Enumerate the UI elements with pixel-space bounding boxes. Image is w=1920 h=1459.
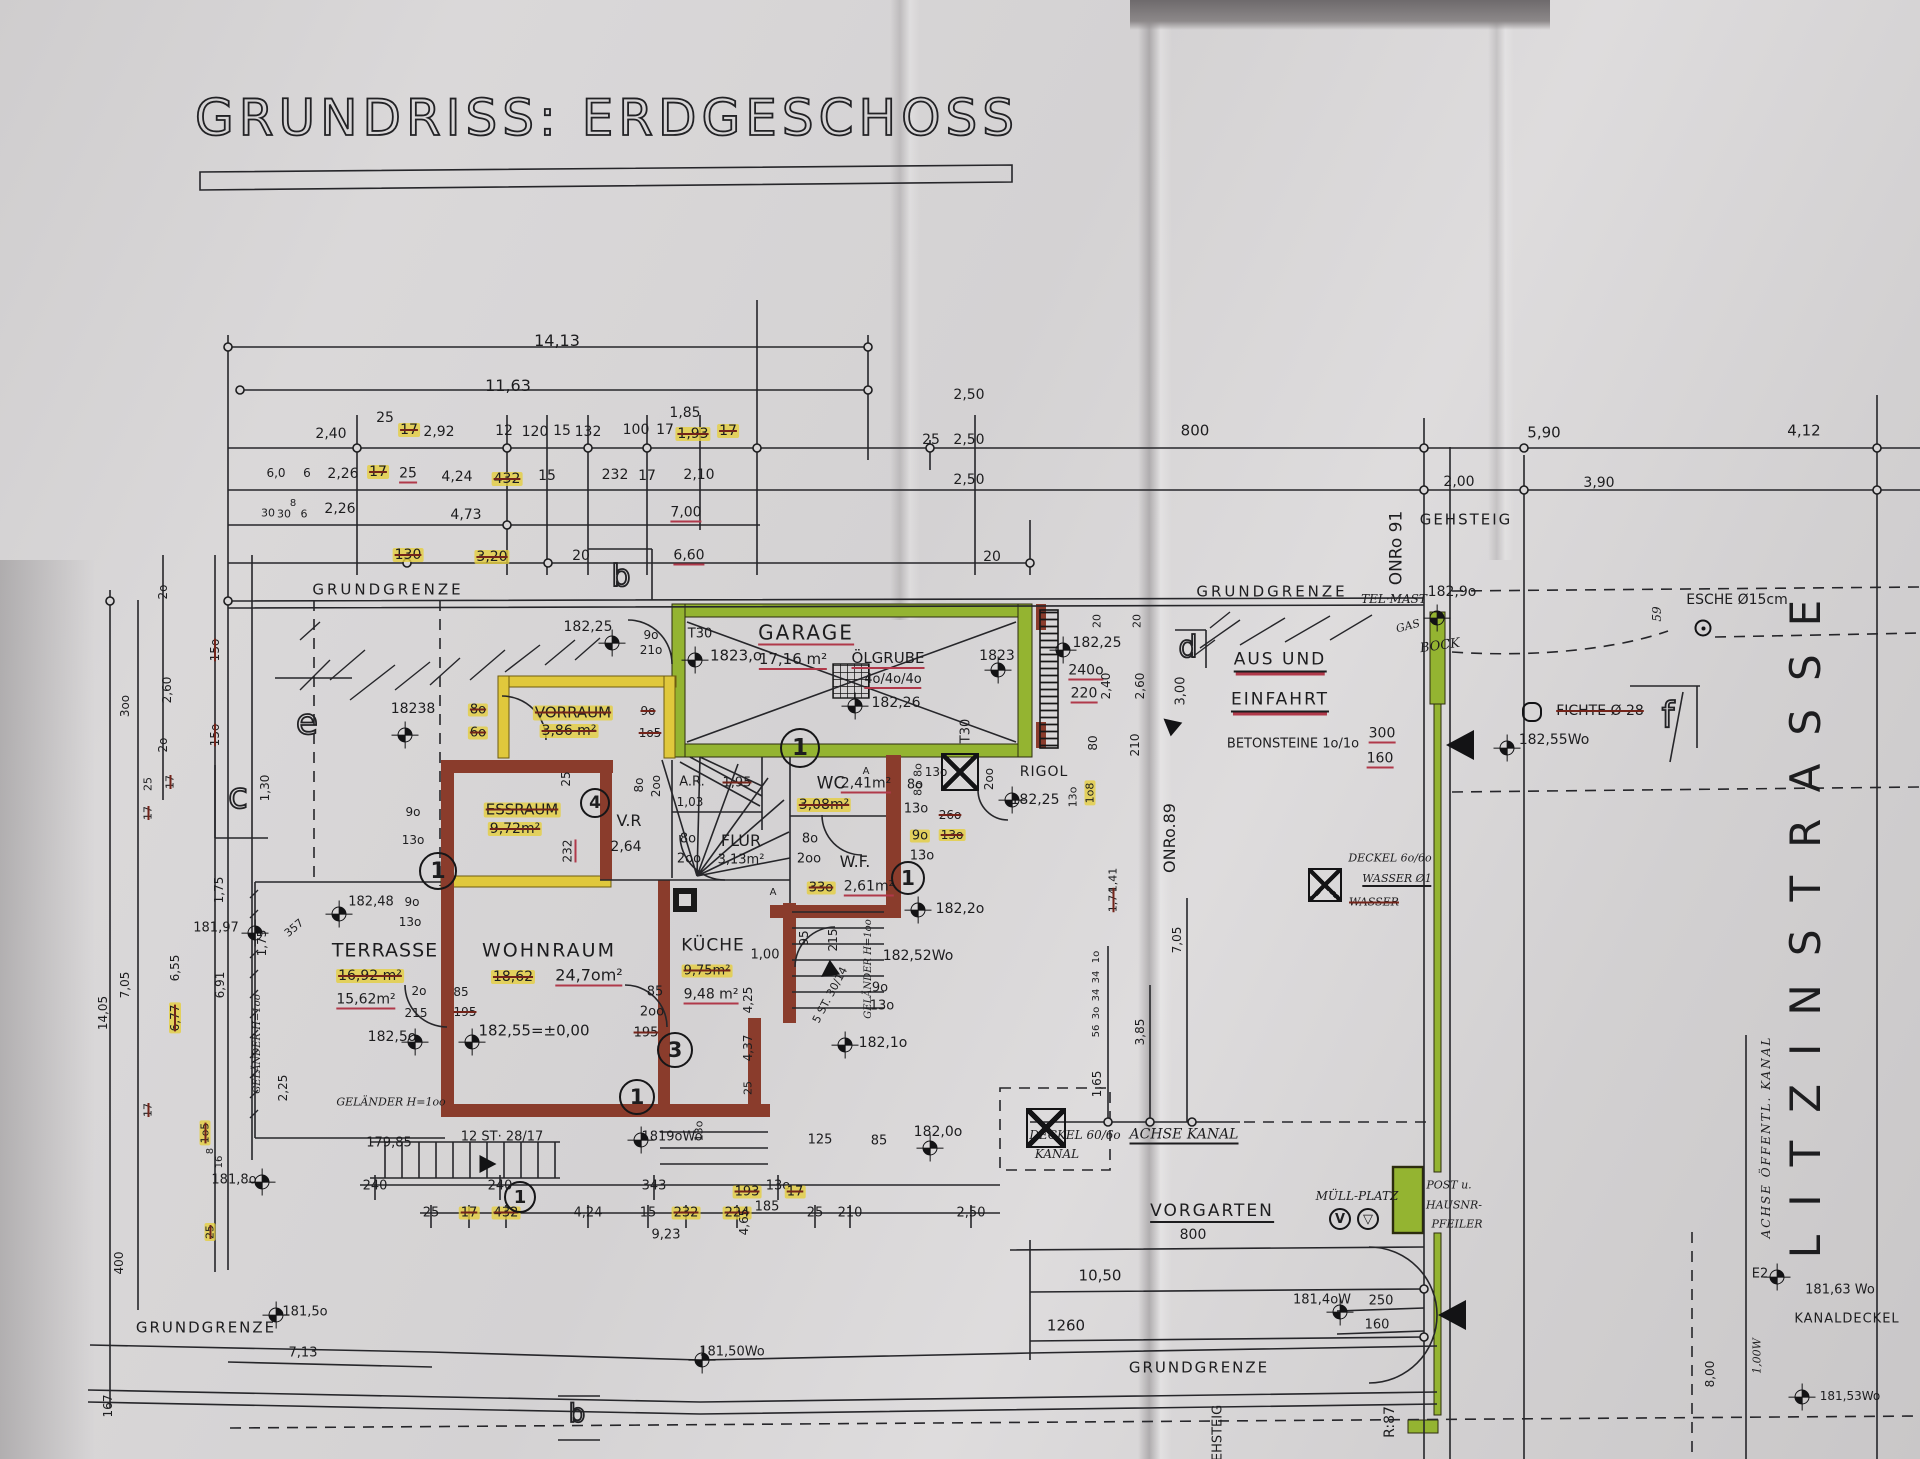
dim: 30 [261, 508, 275, 519]
boundary-label: GRUNDGRENZE [1129, 1361, 1269, 1376]
dim: 8o [468, 704, 488, 717]
position-marker-1: 1 [504, 1181, 536, 1213]
parcel-label: ONRo 91 [1389, 511, 1406, 586]
dim: 17 [398, 423, 420, 437]
dim: 9o [406, 806, 421, 818]
dim: 9,23 [652, 1229, 681, 1242]
dim: 1,93 [675, 427, 710, 441]
note: TEL·MAST [1361, 593, 1427, 605]
dim: 59 [1651, 606, 1663, 621]
dim: 193 [733, 1186, 762, 1199]
dim: 2,25 [277, 1075, 289, 1102]
elevation: 181,53Wo [1820, 1390, 1881, 1402]
dim: 15o [209, 639, 221, 662]
room-area: 24,7om² [555, 968, 622, 987]
position-marker-1: 1 [619, 1079, 655, 1115]
dim: 215 [405, 1007, 428, 1019]
dim: 20 [983, 550, 1001, 564]
dim: 5,90 [1527, 426, 1560, 441]
dim: 100 [623, 423, 650, 437]
dim: 400 [113, 1252, 125, 1275]
dim: 25 [423, 1207, 440, 1220]
dim: 13o [939, 829, 966, 841]
dim: 160 [1367, 752, 1394, 769]
elevation: 18238 [391, 702, 436, 716]
position-marker-1: 1 [780, 728, 820, 768]
dim: 17 [143, 1103, 154, 1117]
position-marker-3: 3 [657, 1032, 693, 1068]
elevation: 179,85 [366, 1137, 412, 1150]
dim: 4,24 [574, 1207, 603, 1220]
dim: 250 [1369, 1295, 1394, 1308]
survey-icon [408, 1035, 423, 1050]
room-area: 9,48 m² [684, 988, 739, 1005]
dim: 25 [560, 771, 572, 786]
note: DECKEL 6o/6o [1348, 853, 1431, 864]
dim: 2,50 [953, 433, 984, 447]
elevation: 182,9o [1428, 585, 1477, 599]
dim: 120 [522, 425, 549, 439]
note: GELÄNDER H=1oo [336, 1097, 445, 1108]
dim: 185 [755, 1201, 780, 1214]
dim: 13o [904, 803, 929, 816]
dim: 8o [680, 833, 696, 846]
dim: 195 [454, 1006, 477, 1018]
dim: 2oo [797, 853, 821, 866]
dim: 15 [538, 469, 556, 483]
dim: 130 [393, 548, 424, 562]
dim: 300 [1369, 727, 1396, 744]
section-letter: e [296, 705, 318, 741]
note: PFEILER [1431, 1219, 1482, 1230]
position-marker-4: 4 [580, 788, 610, 818]
room-area: 2,41m² [841, 777, 891, 794]
room-area: 9,72m² [488, 822, 542, 836]
dim: 17 [143, 806, 154, 820]
dim: 2oo [650, 775, 662, 797]
dim: 33o [807, 882, 836, 895]
survey-icon [991, 663, 1006, 678]
dim: 2,92 [423, 425, 454, 439]
dim: 85 [647, 986, 664, 999]
tree-fichte-icon [1522, 702, 1542, 722]
dim: 17 [717, 424, 739, 438]
note: WASSER Ø1 [1362, 873, 1431, 887]
section-letter: c [228, 779, 248, 815]
survey-icon [255, 1175, 270, 1190]
dim: 1,00 [751, 949, 780, 962]
dim: 25 [743, 1081, 754, 1095]
elevation: 181,97 [193, 922, 239, 935]
dim: 1o [1092, 951, 1102, 963]
elevation: 182,25 [564, 620, 613, 634]
dim: 1,85 [669, 406, 700, 420]
survey-icon [688, 653, 703, 668]
manhole-label: KANALDECKEL [1794, 1313, 1899, 1326]
dim: 167 [102, 1395, 114, 1418]
dim: 3o [1092, 1007, 1102, 1019]
note: BETONSTEINE 1o/1o [1227, 738, 1359, 751]
dim: 20 [572, 549, 590, 563]
dim: 4,73 [450, 508, 481, 522]
elevation: 182,26 [872, 696, 921, 710]
dim: 2,10 [683, 468, 714, 482]
dim: 432 [492, 472, 523, 486]
dim: 15 [640, 1207, 657, 1220]
survey-icon [848, 699, 863, 714]
dim: 6,77 [169, 1003, 181, 1034]
tri-left-icon [1438, 1300, 1466, 1330]
dim: 8o [633, 778, 645, 793]
boundary-label: GRUNDGRENZE [136, 1321, 276, 1336]
dim: 17 [367, 465, 389, 479]
dim: 8o [913, 763, 924, 777]
room-label: ESSRAUM [484, 803, 561, 818]
dim: 6,60 [673, 549, 704, 566]
room-area: 16,92 m² [336, 969, 404, 983]
dim: 13o [1068, 787, 1079, 808]
sidewalk-label: GEHSTEIG [1212, 1405, 1225, 1459]
elevation: 182,25 [1073, 636, 1122, 650]
dim: 13o [402, 834, 425, 846]
dim: 80 [1087, 735, 1099, 750]
room-area: 2,61m² [844, 880, 894, 897]
dim: 7,05 [119, 972, 131, 999]
survey-icon [838, 1038, 853, 1053]
dim: 11,63 [485, 378, 531, 394]
dim: 2,26 [327, 467, 358, 481]
dim: 220 [1071, 687, 1098, 704]
dim: 1,00W [1752, 1338, 1763, 1374]
room-label: WOHNRAUM [482, 942, 616, 961]
dim: 13o [399, 916, 422, 928]
survey-icon [605, 636, 620, 651]
tree-esche-icon [1695, 620, 1712, 637]
dim: 210 [1129, 734, 1141, 757]
dim: 2o [412, 985, 427, 997]
dim: 215 [827, 929, 839, 952]
room-area: 17,16 m² [759, 652, 827, 670]
dim: 1260 [1047, 1319, 1085, 1334]
dim: 6,55 [169, 955, 181, 982]
elevation: 182,2o [936, 902, 985, 916]
dim: 8o [913, 782, 924, 796]
survey-icon [1770, 1270, 1785, 1285]
dim: 3,85 [1134, 1019, 1146, 1046]
note: WASSER [1349, 897, 1399, 908]
tree-label: ESCHE Ø15cm [1686, 593, 1788, 607]
dim: 2,50 [957, 1207, 986, 1220]
dim: 34 [1092, 971, 1102, 984]
garage-door-hatch [1040, 610, 1058, 748]
section-letter: b [569, 1401, 586, 1427]
elevation: 182,48 [348, 896, 394, 909]
position-marker-1: 1 [891, 861, 925, 895]
dim: 1,03 [677, 796, 704, 808]
elevation: 182,55=±0,00 [478, 1024, 589, 1039]
dim: 16 [215, 1156, 225, 1169]
dim: 17 [459, 1207, 480, 1220]
dim: 3,00 [1175, 677, 1188, 706]
dim: 800 [1181, 424, 1210, 439]
fixture-inner [679, 894, 691, 906]
dim: 1o5 [639, 727, 662, 739]
elevation: 181,8o [211, 1174, 256, 1187]
survey-icon [1333, 1305, 1348, 1320]
room-area: 3,86 m² [540, 724, 599, 738]
dim: 25 [143, 777, 154, 791]
dim: 800 [1180, 1228, 1207, 1242]
room-label: A.R. [679, 776, 705, 789]
survey-icon [695, 1353, 710, 1368]
dim: 4,25 [742, 987, 754, 1014]
dim: 210 [838, 1207, 863, 1220]
drain-label: RIGOL [1020, 765, 1069, 779]
dim: 240 [363, 1180, 388, 1193]
elevation: 1823,o [710, 649, 762, 664]
dim: 2,26 [324, 502, 355, 516]
room-label: GARAGE [758, 623, 854, 646]
door-label: T30 [960, 719, 973, 743]
dim: 3oo [119, 695, 131, 717]
dim: 232 [602, 468, 629, 482]
elevation: 181,63 Wo [1805, 1284, 1875, 1297]
room-area: 2,64 [610, 840, 641, 854]
parcel-label: R:87 [1383, 1406, 1397, 1438]
survey-icon [332, 907, 347, 922]
survey-icon [248, 926, 263, 941]
dim: 20 [1132, 614, 1143, 628]
dim: 132 [575, 425, 602, 439]
note: POST u. [1426, 1180, 1471, 1191]
dim: 343 [642, 1180, 667, 1193]
position-marker-▽: ▽ [1357, 1208, 1379, 1230]
door-label: T30 [688, 628, 712, 641]
dim: 9o [644, 629, 659, 641]
dim: 2oo [983, 768, 995, 790]
elevation: 182,0o [914, 1125, 963, 1139]
dim: 25 [205, 1223, 216, 1241]
room-area: 15,62m² [336, 993, 395, 1010]
note: HAUSNR- [1426, 1200, 1482, 1211]
dim: 17 [165, 775, 176, 789]
dim: 85 [453, 986, 468, 998]
dim: 2,50 [953, 388, 984, 402]
dim: 4,12 [1787, 424, 1820, 439]
room-area: 18,62 [491, 970, 535, 984]
dim: 10,50 [1079, 1269, 1122, 1284]
dim: 25 [922, 433, 940, 447]
dim: 3,90 [1583, 476, 1614, 490]
note: GELÄNDER H=1oo [253, 994, 263, 1093]
dim: 8 [206, 1148, 216, 1154]
elevation: 182,55Wo [1519, 733, 1590, 747]
dim: 9o [641, 705, 656, 717]
tri-left-icon [1446, 730, 1474, 760]
oilpit-label: ÖLGRUBE [852, 651, 925, 669]
dim: 13o [910, 850, 935, 863]
elevation: 182,52Wo [883, 949, 954, 963]
dim: 12 [495, 424, 513, 438]
dim: 2oo [640, 1006, 664, 1019]
dim: 2,40 [1100, 673, 1112, 700]
dim: 7,13 [289, 1347, 318, 1360]
elevation: 181,5o [282, 1306, 327, 1319]
dim: 13o [694, 1121, 705, 1142]
section-letter: f [1662, 698, 1675, 734]
dim: A [770, 888, 777, 898]
dim: 14,13 [534, 333, 580, 349]
survey-icon [1795, 1390, 1810, 1405]
dim: 125 [808, 1134, 833, 1147]
elevation: 182,1o [859, 1036, 908, 1050]
dim: 2,40 [315, 427, 346, 441]
room-area: 9,75m² [682, 965, 733, 978]
dim: 4,65 [738, 1209, 750, 1236]
dim: 2oo [677, 853, 701, 866]
room-label: W.F. [840, 854, 871, 870]
dim: 17 [638, 469, 656, 483]
dim: 17 [656, 423, 674, 437]
room-label: V.R [616, 813, 641, 829]
garden-label: VORGARTEN [1150, 1203, 1274, 1223]
dim: 25 [807, 1207, 824, 1220]
driveway-label: AUS UND [1234, 652, 1327, 673]
dim: 4,24 [441, 470, 472, 484]
dim: 56 [1092, 1025, 1102, 1038]
dim: 30 [277, 509, 291, 520]
survey-icon [1430, 611, 1445, 626]
dim: 195 [634, 1027, 659, 1040]
dim: 8,00 [1704, 1361, 1716, 1388]
dim: 9o [405, 896, 420, 908]
dim: 1,75 [213, 877, 225, 904]
room-label: TERRASSE [332, 942, 438, 961]
room-label: VORRAUM [533, 706, 613, 721]
room-label: FLUR [721, 833, 761, 849]
page-title: GRUNDRISS: ERDGESCHOSS [195, 93, 1019, 143]
dim: 2o [157, 585, 169, 600]
dim: 4,37 [742, 1035, 754, 1062]
survey-icon [923, 1141, 938, 1156]
xbox-icon [1026, 1108, 1066, 1148]
dim: 95 [798, 930, 810, 945]
survey-icon [1056, 643, 1071, 658]
parcel-label: ONRo.89 [1162, 803, 1178, 873]
survey-icon [1500, 741, 1515, 756]
survey-icon [465, 1035, 480, 1050]
dim: 2o [157, 738, 169, 753]
dim: 14,05 [97, 996, 109, 1030]
dim: 1,65 [1091, 1071, 1103, 1098]
dim: 6 [303, 467, 311, 479]
tree-label: FICHTE Ø 28 [1556, 704, 1644, 718]
dim: 1,74 [1108, 888, 1119, 913]
note: E2 [1752, 1268, 1769, 1281]
dim: 4o/4o/4o [864, 673, 921, 689]
boundary-label: GRUNDGRENZE [1196, 585, 1347, 600]
dim: 8o [802, 833, 818, 846]
stair-label: 12 ST· 28/17 [461, 1131, 544, 1144]
dim: 232 [562, 840, 577, 863]
section-letter: b [611, 562, 630, 592]
xbox-icon [1308, 868, 1342, 902]
dim: A [863, 767, 870, 777]
dim: 21o [640, 644, 663, 656]
dim: 9o [910, 830, 930, 843]
dim: 1o5 [200, 1121, 211, 1146]
dim: 6,91 [214, 972, 226, 999]
position-marker-1: 1 [419, 852, 457, 890]
survey-icon [634, 1133, 649, 1148]
dim: 34 [1092, 989, 1102, 1002]
dim: 3,20 [474, 550, 509, 564]
room-area: 3,08m² [797, 798, 851, 812]
note: ACHSE KANAL [1130, 1128, 1239, 1145]
dim: 26o [939, 809, 962, 821]
dim: 6o [468, 727, 488, 740]
dim: 6,0 [266, 467, 285, 479]
dim: 7,00 [670, 506, 701, 523]
room-label: KÜCHE [681, 938, 745, 955]
dim: 25 [376, 411, 394, 425]
section-letter: d [1178, 633, 1197, 663]
boundary-label: GRUNDGRENZE [312, 583, 463, 598]
note: GELÄNDER H=1oo [864, 919, 874, 1018]
floorplan-photo: { "title":{"text":"GRUNDRISS: ERDGESCHOS… [0, 0, 1920, 1459]
dim: 15o [209, 724, 221, 747]
dim: 2,50 [953, 473, 984, 487]
street-label: LITZINSTRASSE [1785, 572, 1827, 1258]
dim: 2,60 [1134, 673, 1146, 700]
position-marker-V: V [1329, 1208, 1351, 1230]
dim: 85 [871, 1135, 888, 1148]
note: MÜLL-PLATZ [1316, 1190, 1399, 1202]
survey-icon [1005, 793, 1020, 808]
xbox-icon [941, 753, 979, 791]
dim: 2,00 [1443, 475, 1474, 489]
dim: 15 [553, 424, 571, 438]
dim: 7,05 [1171, 927, 1183, 954]
room-area: 3,13m² [718, 854, 765, 867]
dim: 160 [1365, 1319, 1390, 1332]
note: KANAL [1035, 1148, 1079, 1160]
dim: 20 [1092, 614, 1103, 628]
room-area: 1,95 [723, 777, 752, 790]
dim: 1,30 [259, 775, 271, 802]
dim: 17 [785, 1186, 806, 1199]
dim: 1o8 [1085, 781, 1096, 806]
driveway-label: EINFAHRT [1231, 692, 1329, 713]
sidewalk-label: GEHSTEIG [1420, 513, 1513, 528]
dimension-lines [88, 165, 1920, 1459]
tri-small-icon [480, 1155, 497, 1173]
survey-icon [398, 728, 413, 743]
dim: 9o [872, 982, 888, 995]
note: ACHSE ÖFFENTL. KANAL [1760, 1036, 1772, 1239]
dim: 2,60 [161, 677, 173, 704]
dim: 232 [672, 1207, 701, 1220]
dim: 25 [399, 467, 417, 484]
survey-icon [269, 1308, 284, 1323]
dim: 8 [290, 499, 296, 509]
survey-icon [911, 903, 926, 918]
dim: 6 [301, 509, 308, 520]
